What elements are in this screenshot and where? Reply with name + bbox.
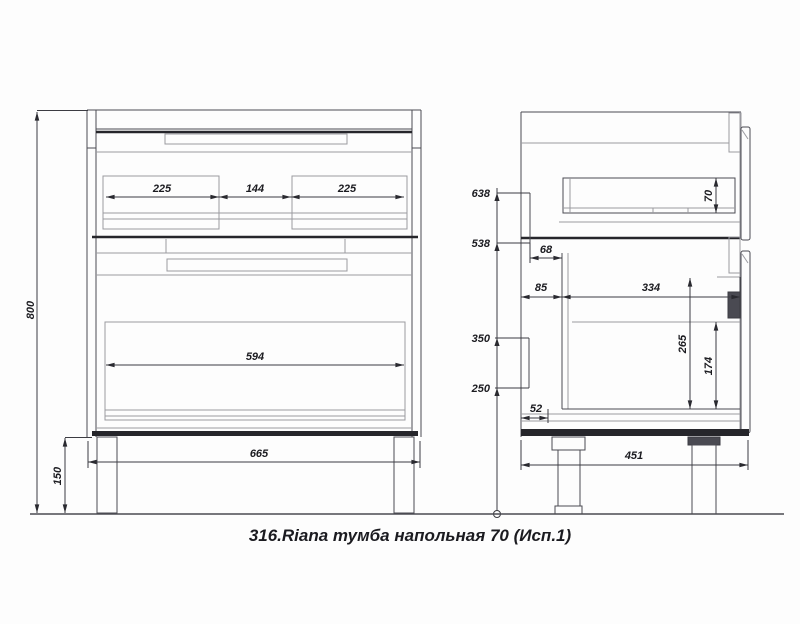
dim-height-638: 638 xyxy=(472,188,491,200)
lower-drawer-front-profile xyxy=(741,251,750,433)
side-back-leg xyxy=(692,445,716,514)
dim-depth: 451 xyxy=(624,450,643,462)
cabinet-dimension-drawing: 800 150 225 144 225 594 665 xyxy=(0,0,800,624)
dim-segment-middle: 144 xyxy=(246,183,264,195)
front-view-dimensions: 800 150 225 144 225 594 665 xyxy=(25,111,420,514)
dim-opening-height: 265 xyxy=(677,334,689,354)
dim-leg-height: 150 xyxy=(52,466,64,485)
dim-top-drawer-box-height: 70 xyxy=(703,189,715,202)
dim-height-350: 350 xyxy=(472,333,491,345)
side-top-corner-piece xyxy=(729,113,741,152)
dim-segment-right: 225 xyxy=(337,183,357,195)
side-view-dimensions: 638 538 350 250 68 85 334 70 265 174 xyxy=(471,178,748,518)
front-view: 800 150 225 144 225 594 665 xyxy=(25,110,421,513)
lower-drawer-handle-recess xyxy=(167,259,347,271)
dim-drawer-inner-width: 594 xyxy=(246,351,264,363)
technical-drawing-page: 800 150 225 144 225 594 665 xyxy=(0,0,800,624)
front-left-leg xyxy=(97,437,117,513)
upper-drawer-handle-recess xyxy=(165,134,347,144)
side-front-leg xyxy=(558,450,580,506)
dim-back-offset-bottom: 85 xyxy=(535,282,548,294)
side-bottom-edge xyxy=(521,429,749,436)
dim-drawer-box-length: 334 xyxy=(642,282,660,294)
dim-height-538: 538 xyxy=(472,238,491,250)
dim-drawer-side-height: 174 xyxy=(703,357,715,375)
side-front-leg-foot xyxy=(555,506,582,514)
dim-height-250: 250 xyxy=(471,383,491,395)
side-front-leg-plate xyxy=(552,437,585,450)
dim-bottom-back-offset: 52 xyxy=(530,403,542,415)
front-mount-bracket xyxy=(728,292,740,318)
dim-segment-left: 225 xyxy=(152,183,172,195)
dim-back-offset-top: 68 xyxy=(540,244,553,256)
front-right-leg xyxy=(394,437,414,513)
dim-overall-width: 665 xyxy=(250,448,269,460)
side-mid-corner-piece xyxy=(729,237,740,273)
dim-overall-height: 800 xyxy=(25,300,37,319)
cabinet-bottom-edge xyxy=(92,431,418,436)
drawing-title: 316.Riana тумба напольная 70 (Исп.1) xyxy=(249,526,572,545)
side-back-leg-plate xyxy=(688,437,720,445)
upper-drawer-front-profile xyxy=(741,127,750,240)
side-view: 638 538 350 250 68 85 334 70 265 174 xyxy=(471,112,750,518)
lower-drawer-box xyxy=(105,322,405,420)
